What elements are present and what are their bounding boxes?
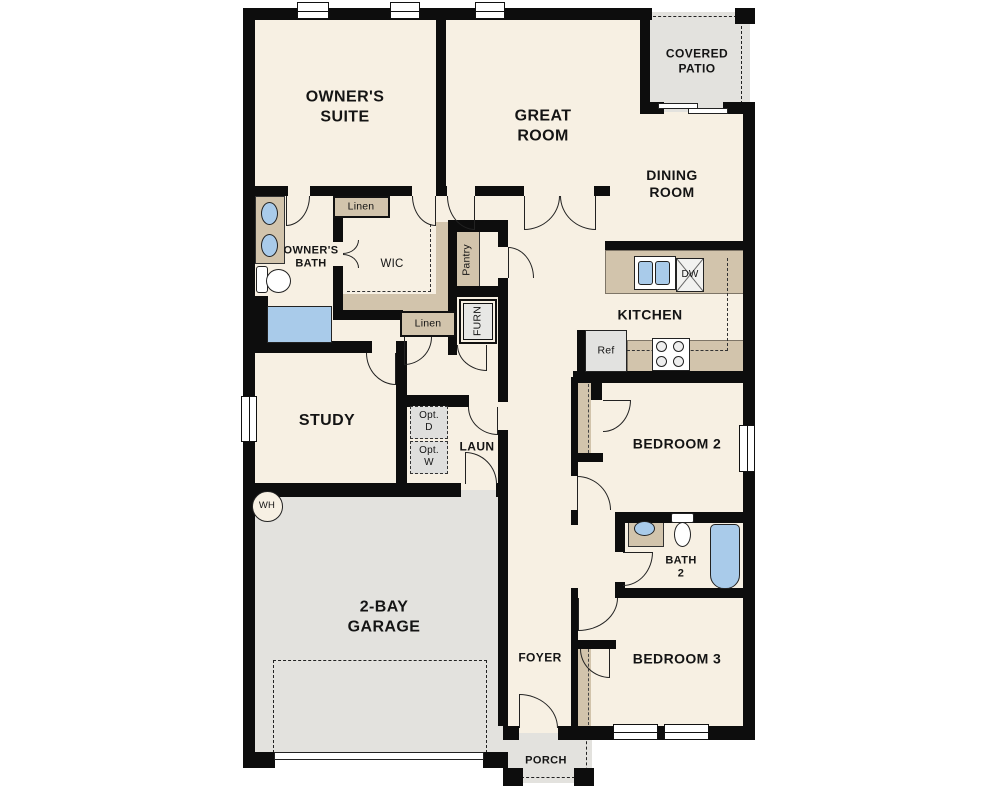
garage-door (274, 752, 484, 760)
toilet-bowl (674, 522, 691, 547)
wall (618, 588, 755, 598)
wall (571, 588, 578, 598)
room-label-garage: 2-BAY GARAGE (348, 597, 421, 636)
wall (250, 186, 288, 196)
room-label-laundry: LAUN (460, 440, 495, 455)
wall (571, 640, 616, 649)
porch-dash-bottom (521, 777, 575, 779)
wall (243, 8, 255, 768)
wall (310, 186, 412, 196)
window (390, 2, 420, 19)
wall (571, 510, 578, 525)
fixture-label-opt-dryer: Opt. D (419, 410, 439, 434)
wall (615, 523, 625, 552)
window (613, 724, 658, 740)
room-label-porch: PORCH (525, 754, 567, 767)
room-label-covered-patio: COVERED PATIO (666, 46, 728, 75)
window (664, 724, 709, 740)
toilet-bowl (266, 269, 291, 293)
room-label-kitchen: KITCHEN (617, 306, 682, 323)
stove-burner (673, 356, 684, 367)
sink-basin (655, 261, 670, 285)
window (297, 2, 329, 19)
wall (640, 8, 650, 108)
owners-bath-sink (261, 202, 278, 225)
wall (574, 768, 594, 786)
garage-bay-dash (273, 660, 487, 753)
room-label-bath2: BATH 2 (665, 555, 696, 582)
wall (571, 453, 603, 462)
fixture-label-water-heater: WH (259, 500, 275, 512)
wall (483, 752, 508, 768)
bathtub (710, 524, 740, 589)
room-label-dining-room: DINING ROOM (646, 167, 697, 201)
room-label-owners-suite: OWNER'S SUITE (306, 87, 385, 126)
wall (594, 186, 610, 196)
window (475, 2, 505, 19)
patio-overhang-dash-right (741, 16, 743, 104)
patio-overhang-dash-top (648, 16, 737, 18)
wall (503, 768, 523, 786)
window (241, 396, 257, 442)
room-label-study: STUDY (299, 411, 355, 431)
wall (577, 330, 585, 372)
fixture-label-linen-lower: Linen (415, 318, 442, 331)
wall (333, 310, 403, 320)
wall (436, 186, 447, 196)
wall (591, 383, 602, 400)
wall (503, 726, 519, 740)
wall (498, 220, 508, 247)
kitchen-cabinet-dash-v (727, 258, 729, 351)
wall (743, 104, 755, 740)
bath2-sink (634, 521, 655, 536)
room-label-foyer: FOYER (518, 651, 561, 666)
wall (573, 371, 755, 383)
wall (436, 15, 446, 196)
stove-burner (656, 356, 667, 367)
room-label-owners-bath: OWNER'S BATH (284, 245, 339, 272)
fixture-label-refrigerator: Ref (598, 345, 615, 358)
patio-slider-panel (688, 108, 728, 114)
wall (558, 726, 592, 740)
wall (475, 186, 524, 196)
fixture-label-opt-washer: Opt. W (419, 445, 439, 469)
room-label-bedroom3: BEDROOM 3 (633, 650, 721, 667)
stove-burner (656, 341, 667, 352)
window (739, 425, 755, 472)
fixture-label-furnace: FURN (472, 306, 485, 336)
wall (243, 752, 275, 768)
fixture-label-pantry: Pantry (461, 244, 474, 276)
room-label-bedroom2: BEDROOM 2 (633, 435, 721, 452)
owners-bath-sink (261, 234, 278, 257)
shower (267, 306, 332, 343)
fixture-label-linen-upper: Linen (348, 201, 375, 214)
wall (571, 598, 578, 726)
bedroom2-closet-rod (588, 384, 590, 453)
stove-burner (673, 341, 684, 352)
room-label-great-room: GREAT ROOM (515, 106, 572, 145)
wall (498, 278, 508, 402)
sink-basin (638, 261, 653, 285)
wall (605, 241, 755, 250)
floor-plan: OWNER'S SUITE GREAT ROOM COVERED PATIO D… (0, 0, 1000, 800)
room-label-wic: WIC (381, 257, 404, 271)
wall (498, 430, 508, 726)
wall (735, 8, 755, 24)
fixture-label-dishwasher: DW (681, 269, 698, 281)
